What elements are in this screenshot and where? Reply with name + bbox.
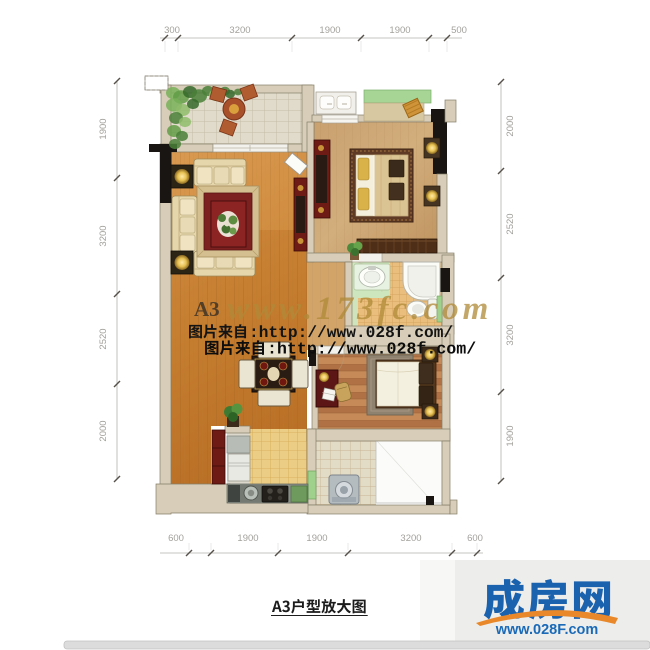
svg-text:2520: 2520 <box>98 328 109 349</box>
svg-text:3200: 3200 <box>400 533 421 544</box>
svg-text:3200: 3200 <box>505 324 516 345</box>
svg-text:2000: 2000 <box>98 420 109 441</box>
svg-text:1900: 1900 <box>505 425 516 446</box>
svg-text:1900: 1900 <box>237 533 258 544</box>
svg-text:www.028F.com: www.028F.com <box>495 622 599 638</box>
svg-text:3200: 3200 <box>98 225 109 246</box>
svg-text:3200: 3200 <box>229 25 250 36</box>
svg-text:1900: 1900 <box>319 25 340 36</box>
svg-text:2520: 2520 <box>505 213 516 234</box>
svg-text:1900: 1900 <box>389 25 410 36</box>
svg-text:500: 500 <box>451 25 467 36</box>
svg-text:2000: 2000 <box>505 115 516 136</box>
svg-text:600: 600 <box>467 533 483 544</box>
svg-text:300: 300 <box>164 25 180 36</box>
svg-text:A3: A3 <box>194 297 220 321</box>
svg-text:1900: 1900 <box>306 533 327 544</box>
svg-text:1900: 1900 <box>98 118 109 139</box>
svg-text:www.173fc.com: www.173fc.com <box>227 291 492 327</box>
svg-text:600: 600 <box>168 533 184 544</box>
